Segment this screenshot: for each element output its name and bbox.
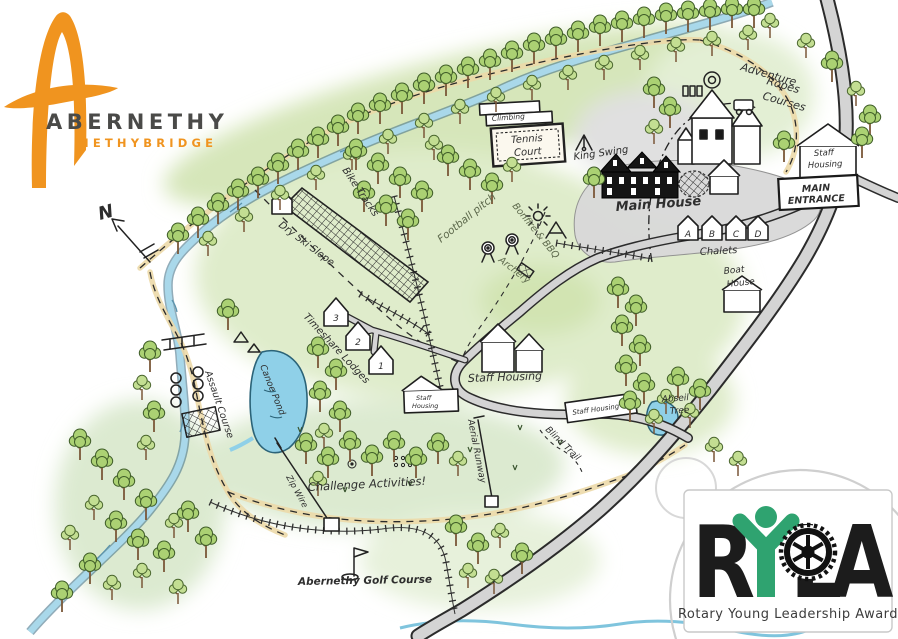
tennis-court — [491, 124, 565, 167]
site-map-canvas: Staff Housing Adventure Ropes Courses Ki… — [0, 0, 898, 639]
label-staff-housing-centre: Staff Housing — [468, 369, 543, 385]
label-staff-ne-2: Housing — [808, 159, 844, 171]
site-map-page: Staff Housing Adventure Ropes Courses Ki… — [0, 0, 898, 639]
main-house — [600, 152, 680, 198]
label-abseil-tree-1: Abseil — [661, 393, 690, 405]
label-chalet-b: B — [709, 230, 715, 240]
label-lodge-3: 3 — [333, 314, 339, 324]
label-abseil-tree-2: Tree — [670, 406, 691, 417]
abernethy-swoosh-icon — [4, 85, 118, 109]
label-staff-west-1: Staff — [416, 394, 433, 402]
ryla-caption: Rotary Young Leadership Award — [678, 607, 898, 622]
label-chalets: Chalets — [700, 245, 738, 258]
label-tennis-1: Tennis — [511, 133, 543, 146]
abernethy-wordmark: ABERNETHY — [46, 110, 228, 134]
adventure-garden — [679, 171, 709, 197]
label-tennis-2: Court — [514, 146, 543, 159]
rotary-wheel-icon — [781, 525, 835, 579]
label-boat-house-1: Boat — [723, 265, 745, 277]
label-lodge-1: 1 — [378, 362, 384, 372]
label-chalet-a: A — [684, 230, 691, 240]
ryla-letter-a: A — [830, 504, 894, 621]
label-golf-course: Abernethy Golf Course — [297, 574, 432, 588]
north-arrow-icon: N — [96, 201, 158, 262]
label-chalet-c: C — [733, 230, 740, 240]
label-chalet-d: D — [755, 230, 762, 240]
abernethy-location: NETHYBRIDGE — [79, 136, 217, 150]
label-staff-ne-1: Staff — [814, 148, 835, 159]
label-lodge-2: 2 — [355, 338, 361, 348]
ryla-logo: R L A Rotary Young Leadership Award — [656, 458, 898, 639]
label-staff-west-2: Housing — [412, 402, 438, 410]
